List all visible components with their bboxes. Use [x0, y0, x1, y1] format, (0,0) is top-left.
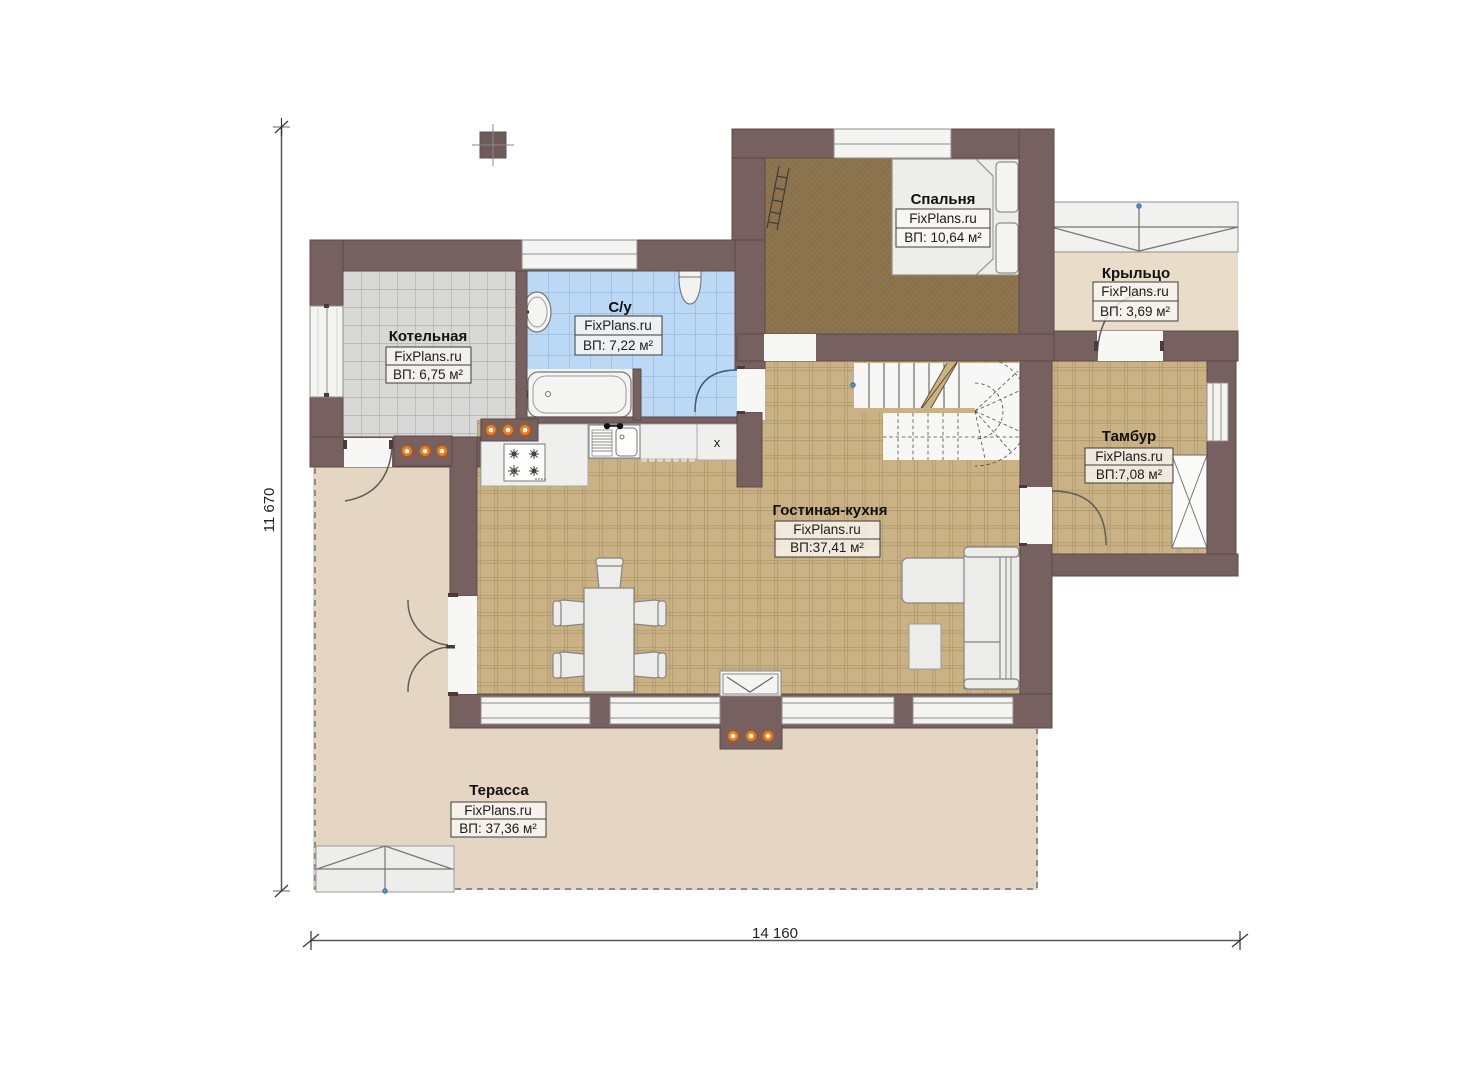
- svg-text:ВП:7,08 м²: ВП:7,08 м²: [1096, 467, 1163, 482]
- svg-text:С/у: С/у: [608, 299, 632, 316]
- svg-text:FixPlans.ru: FixPlans.ru: [394, 349, 462, 364]
- svg-text:ВП:37,41 м²: ВП:37,41 м²: [790, 540, 864, 555]
- svg-text:FixPlans.ru: FixPlans.ru: [1095, 449, 1163, 464]
- svg-text:FixPlans.ru: FixPlans.ru: [584, 318, 652, 333]
- svg-text:FixPlans.ru: FixPlans.ru: [793, 522, 861, 537]
- svg-text:ВП: 10,64 м²: ВП: 10,64 м²: [904, 230, 982, 245]
- svg-text:ВП: 37,36 м²: ВП: 37,36 м²: [459, 821, 537, 836]
- svg-text:Тамбур: Тамбур: [1102, 428, 1156, 445]
- svg-text:11 670: 11 670: [261, 488, 278, 533]
- svg-text:Крыльцо: Крыльцо: [1102, 265, 1170, 282]
- svg-text:ВП: 6,75 м²: ВП: 6,75 м²: [393, 367, 464, 382]
- svg-text:Спальня: Спальня: [911, 191, 976, 208]
- svg-text:14 160: 14 160: [752, 925, 798, 942]
- svg-text:FixPlans.ru: FixPlans.ru: [464, 803, 532, 818]
- svg-text:Терасса: Терасса: [469, 782, 529, 799]
- svg-text:ВП: 3,69 м²: ВП: 3,69 м²: [1100, 304, 1171, 319]
- svg-text:х: х: [714, 435, 721, 450]
- svg-text:Котельная: Котельная: [389, 328, 468, 345]
- svg-text:ВП: 7,22 м²: ВП: 7,22 м²: [583, 338, 654, 353]
- svg-text:FixPlans.ru: FixPlans.ru: [1101, 284, 1169, 299]
- svg-text:Гостиная-кухня: Гостиная-кухня: [773, 502, 888, 519]
- svg-text:FixPlans.ru: FixPlans.ru: [909, 211, 977, 226]
